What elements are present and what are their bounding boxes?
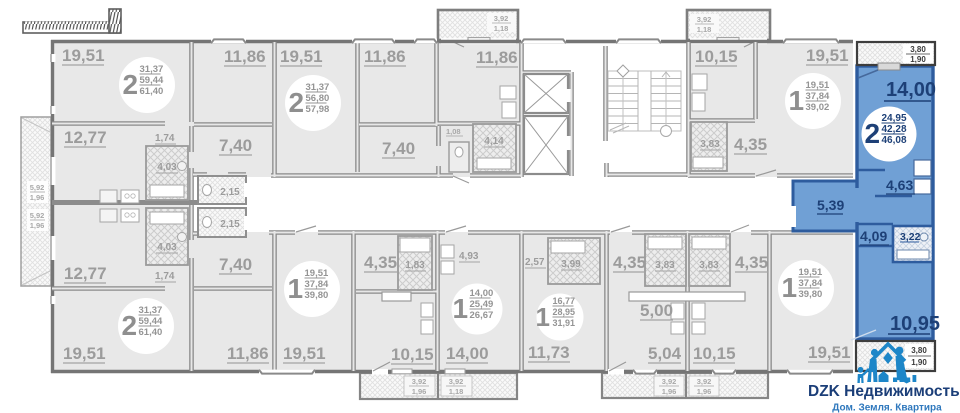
svg-text:14,00: 14,00 [446, 344, 489, 363]
svg-text:37,84: 37,84 [806, 91, 830, 102]
svg-text:5,04: 5,04 [648, 344, 682, 363]
svg-text:37,84: 37,84 [799, 278, 823, 289]
svg-text:31,91: 31,91 [553, 318, 576, 328]
svg-text:1,96: 1,96 [30, 221, 45, 230]
svg-text:5,39: 5,39 [817, 197, 844, 213]
svg-text:10,15: 10,15 [391, 345, 434, 364]
svg-text:61,40: 61,40 [140, 86, 164, 97]
svg-text:4,35: 4,35 [613, 253, 646, 272]
svg-text:19,51: 19,51 [806, 80, 830, 91]
svg-text:28,95: 28,95 [553, 307, 576, 317]
svg-text:1,74: 1,74 [155, 271, 175, 282]
svg-text:7,40: 7,40 [219, 255, 252, 274]
svg-text:39,80: 39,80 [799, 289, 823, 300]
svg-text:11,86: 11,86 [476, 48, 518, 67]
svg-text:4,35: 4,35 [734, 135, 767, 154]
svg-text:2: 2 [865, 118, 881, 149]
svg-text:10,15: 10,15 [695, 47, 738, 66]
svg-text:57,98: 57,98 [306, 104, 330, 115]
svg-text:2: 2 [123, 69, 139, 100]
svg-text:19,51: 19,51 [806, 46, 849, 65]
svg-text:1: 1 [453, 293, 469, 324]
svg-text:7,40: 7,40 [382, 139, 415, 158]
svg-text:59,44: 59,44 [139, 316, 163, 327]
svg-text:4,63: 4,63 [886, 177, 913, 193]
svg-text:3,92: 3,92 [449, 377, 464, 386]
svg-text:19,51: 19,51 [808, 343, 851, 362]
svg-text:19,51: 19,51 [62, 46, 105, 65]
svg-text:3,83: 3,83 [699, 260, 719, 271]
svg-text:5,00: 5,00 [640, 301, 673, 320]
svg-text:31,37: 31,37 [139, 305, 163, 316]
svg-text:3,92: 3,92 [697, 15, 712, 24]
svg-text:3,92: 3,92 [697, 377, 712, 386]
svg-text:7,40: 7,40 [219, 136, 252, 155]
svg-text:25,49: 25,49 [470, 299, 494, 310]
svg-text:24,95: 24,95 [882, 113, 907, 124]
svg-text:1,96: 1,96 [662, 387, 677, 396]
svg-text:5,92: 5,92 [30, 183, 45, 192]
svg-text:4,03: 4,03 [157, 162, 177, 173]
svg-text:4,35: 4,35 [735, 253, 768, 272]
svg-text:1: 1 [536, 302, 550, 332]
svg-text:3,22: 3,22 [900, 231, 921, 243]
svg-text:11,73: 11,73 [528, 343, 570, 362]
svg-text:5,92: 5,92 [30, 211, 45, 220]
svg-text:56,80: 56,80 [306, 93, 330, 104]
svg-text:1,90: 1,90 [910, 55, 926, 64]
svg-text:3,92: 3,92 [412, 377, 427, 386]
svg-text:39,80: 39,80 [305, 290, 329, 301]
svg-text:1: 1 [288, 273, 304, 304]
svg-text:1,96: 1,96 [30, 193, 45, 202]
svg-text:1,90: 1,90 [911, 358, 927, 367]
svg-text:19,51: 19,51 [280, 47, 323, 66]
svg-text:1,74: 1,74 [155, 133, 175, 144]
svg-text:1,08: 1,08 [446, 127, 461, 136]
svg-text:39,02: 39,02 [806, 102, 830, 113]
svg-text:4,14: 4,14 [484, 136, 504, 147]
svg-text:37,84: 37,84 [305, 279, 329, 290]
svg-text:DZK Недвижимость: DZK Недвижимость [808, 383, 960, 400]
svg-text:3,83: 3,83 [700, 139, 720, 150]
svg-text:3,83: 3,83 [655, 260, 675, 271]
svg-text:1,96: 1,96 [697, 387, 712, 396]
svg-text:46,08: 46,08 [882, 135, 907, 146]
svg-text:2: 2 [122, 310, 138, 341]
svg-text:19,51: 19,51 [283, 344, 326, 363]
svg-text:19,51: 19,51 [63, 344, 106, 363]
svg-text:61,40: 61,40 [139, 327, 163, 338]
svg-text:11,86: 11,86 [224, 47, 266, 66]
svg-text:1,18: 1,18 [449, 387, 464, 396]
svg-text:1,96: 1,96 [412, 387, 427, 396]
svg-text:16,77: 16,77 [553, 296, 576, 306]
svg-text:3,80: 3,80 [910, 45, 926, 54]
svg-text:19,51: 19,51 [305, 268, 329, 279]
svg-text:1,18: 1,18 [697, 25, 712, 34]
svg-text:4,35: 4,35 [364, 253, 397, 272]
svg-text:31,37: 31,37 [306, 82, 330, 93]
svg-text:1,18: 1,18 [494, 24, 509, 33]
svg-text:12,77: 12,77 [64, 128, 107, 147]
svg-text:10,95: 10,95 [890, 313, 940, 335]
svg-text:4,03: 4,03 [157, 242, 177, 253]
svg-text:31,37: 31,37 [140, 64, 164, 75]
svg-text:11,86: 11,86 [227, 344, 269, 363]
svg-text:3,99: 3,99 [561, 259, 581, 270]
svg-text:3,92: 3,92 [494, 14, 509, 23]
svg-text:19,51: 19,51 [799, 267, 823, 278]
svg-text:2,15: 2,15 [220, 187, 240, 198]
svg-text:26,67: 26,67 [470, 310, 494, 321]
svg-text:2,15: 2,15 [220, 219, 240, 230]
svg-text:2: 2 [289, 87, 305, 118]
svg-text:1: 1 [789, 85, 805, 116]
svg-text:1: 1 [782, 272, 798, 303]
svg-text:11,86: 11,86 [364, 47, 406, 66]
svg-text:4,09: 4,09 [860, 228, 887, 244]
svg-text:2,57: 2,57 [525, 257, 545, 268]
svg-text:3,92: 3,92 [662, 377, 677, 386]
svg-text:4,93: 4,93 [459, 251, 479, 262]
svg-text:3,80: 3,80 [911, 346, 927, 355]
svg-text:1,83: 1,83 [405, 260, 425, 271]
svg-text:14,00: 14,00 [470, 288, 494, 299]
svg-text:12,77: 12,77 [64, 264, 107, 283]
svg-text:Дом. Земля. Квартира: Дом. Земля. Квартира [832, 403, 942, 413]
svg-text:42,28: 42,28 [882, 124, 907, 135]
svg-text:14,00: 14,00 [886, 79, 936, 101]
svg-text:10,15: 10,15 [693, 344, 736, 363]
svg-text:59,44: 59,44 [140, 75, 164, 86]
